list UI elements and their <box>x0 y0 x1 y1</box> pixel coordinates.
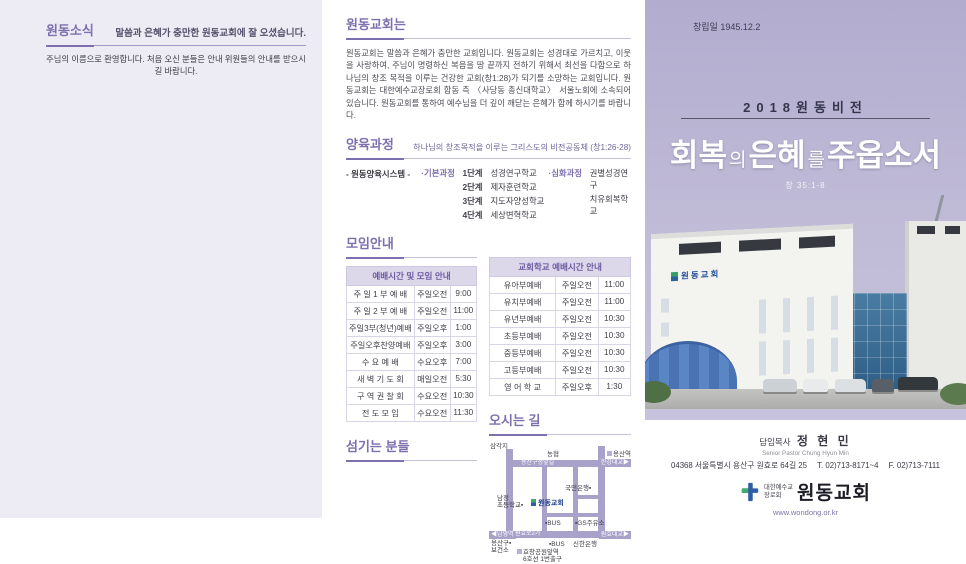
pastor-line: 담임목사 정 현 민 <box>645 432 966 449</box>
nurture-basic-label: ·기본과정 <box>421 167 462 223</box>
worship-table-header: 예배시간 및 모임 안내 <box>347 266 477 285</box>
address: 04368 서울특별시 용산구 원효로 64길 25 <box>671 461 807 470</box>
church-building-photo: 원동교회 <box>645 195 966 420</box>
table-cell: 11:30 <box>450 404 476 421</box>
section-meetings: 모임안내 예배시간 및 모임 안내 주 일 1 부 예 배주일오전9:00주 일… <box>346 233 631 559</box>
station-square-icon <box>607 451 612 456</box>
table-cell: 영 어 학 교 <box>490 378 556 395</box>
cover-footer: 담임목사 정 현 민 Senior Pastor Chung Hyun Min … <box>645 420 966 518</box>
table-cell: 주일오후찬양예배 <box>347 336 415 353</box>
verse-reference: 창 35:1-8 <box>645 180 966 191</box>
table-row: 주 일 1 부 예 배주일오전9:00 <box>347 285 477 302</box>
table-cell: 매일오전 <box>414 370 450 387</box>
table-cell: 전 도 모 임 <box>347 404 415 421</box>
step-no: 1단계 <box>462 167 490 179</box>
table-cell: 구 역 권 찰 회 <box>347 387 415 404</box>
table-row: 영 어 학 교주일오후1:30 <box>490 378 631 395</box>
nurture-title: 양육과정 <box>346 134 394 153</box>
table-cell: 중등부예배 <box>490 344 556 361</box>
photo-bottom-strip <box>645 409 966 420</box>
map-label-namyeong: ◀남영역 <box>489 531 516 539</box>
table-cell: 주일오전 <box>414 302 450 319</box>
panel-cover: 창립일 1945.12.2 2018원동비전 회복의은혜를주옵소서 창 35:1… <box>645 0 966 518</box>
parked-car <box>898 377 938 390</box>
table-cell: 유아부예배 <box>490 276 556 293</box>
table-cell: 주일오전 <box>556 293 598 310</box>
step-no: 3단계 <box>462 195 490 207</box>
table-cell: 5:30 <box>450 370 476 387</box>
section-about: 원동교회는 원동교회는 말씀과 은혜가 충만한 교회입니다. 원동교회는 성경대… <box>346 14 631 122</box>
building-sign: 원동교회 <box>671 268 720 283</box>
map-label-yongsan-station: 용산역 <box>607 451 631 459</box>
table-row: 새 벽 기 도 회매일오전5:30 <box>347 370 477 387</box>
title-word: 은혜 <box>748 138 805 173</box>
table-row: 전 도 모 임수요오전11:30 <box>347 404 477 421</box>
nurture-subtitle: 하나님의 창조목적을 이루는 그리스도의 비전공동체 (창1:26-28) <box>413 141 631 153</box>
table-cell: 10:30 <box>598 310 630 327</box>
news-headline: 말씀과 은혜가 충만한 원동교회에 잘 오셨습니다. <box>115 25 306 39</box>
table-cell: 수요오전 <box>414 404 450 421</box>
about-body: 원동교회는 말씀과 은혜가 충만한 교회입니다. 원동교회는 성경대로 가르치고… <box>346 47 631 122</box>
table-cell: 11:00 <box>598 276 630 293</box>
ground <box>645 389 966 409</box>
founding-date: 창립일 1945.12.2 <box>693 20 760 33</box>
table-cell: 주일오전 <box>556 344 598 361</box>
table-cell: 수요오전 <box>414 387 450 404</box>
cross-icon <box>740 482 760 502</box>
table-cell: 주일오전 <box>556 310 598 327</box>
main-title: 회복의은혜를주옵소서 <box>645 130 966 175</box>
table-row: 초등부예배주일오전10:30 <box>490 327 631 344</box>
map-label-shinhan-bank: 신한은행 <box>573 541 597 549</box>
table-cell: 수요오후 <box>414 353 450 370</box>
meetings-right-column: 교회학교 예배시간 안내 유아부예배주일오전11:00유치부예배주일오전11:0… <box>489 233 631 559</box>
subway-text: 효창공원앞역 6호선 1번출구 <box>523 549 562 564</box>
table-cell: 유년부예배 <box>490 310 556 327</box>
map-label-kb-bank: 국민은행▪ <box>565 485 591 493</box>
advanced-item: 치유회복학교 <box>590 193 631 217</box>
table-row: 유치부예배주일오전11:00 <box>490 293 631 310</box>
roof-windows <box>679 236 835 255</box>
step-no: 4단계 <box>462 209 490 221</box>
table-cell: 10:30 <box>598 361 630 378</box>
worship-times-table: 예배시간 및 모임 안내 주 일 1 부 예 배주일오전9:00주 일 2 부 … <box>346 266 477 422</box>
nurture-content: - 원동양육시스템 - ·기본과정 1단계성경연구학교 2단계제자훈련학교 3단… <box>346 167 631 223</box>
table-cell: 주일오전 <box>556 276 598 293</box>
news-title: 원동소식 <box>46 20 94 39</box>
about-title: 원동교회는 <box>346 14 631 39</box>
pastor-name: 정 현 민 <box>797 434 852 448</box>
parked-car <box>872 379 894 392</box>
panel-news: 원동소식 말씀과 은혜가 충만한 원동교회에 잘 오셨습니다. 주님의 이름으로… <box>0 0 322 518</box>
phone-number: T. 02)713-8171~4 <box>817 461 878 470</box>
table-row: 주 일 2 부 예 배주일오전11:00 <box>347 302 477 319</box>
table-row: 고등부예배주일오전10:30 <box>490 361 631 378</box>
news-header-row: 원동소식 말씀과 은혜가 충만한 원동교회에 잘 오셨습니다. <box>46 20 306 46</box>
map-label-school: 남정 초등학교▪ <box>497 495 523 511</box>
table-cell: 초등부예배 <box>490 327 556 344</box>
nurture-system-label: - 원동양육시스템 - <box>346 167 421 223</box>
map-label-bus-upper: ▪BUS <box>545 520 561 528</box>
table-cell: 10:30 <box>598 344 630 361</box>
table-cell: 주일오후 <box>556 378 598 395</box>
fold-line-right <box>641 0 645 518</box>
table-cell: 9:00 <box>450 285 476 302</box>
table-cell: 주일3부(청년)예배 <box>347 319 415 336</box>
nurture-header: 양육과정 하나님의 창조목적을 이루는 그리스도의 비전공동체 (창1:26-2… <box>346 134 631 159</box>
pastor-name-english: Senior Pastor Chung Hyun Min <box>645 450 966 457</box>
map-label-bridge-bottom: 원효대교▶ <box>599 531 631 539</box>
map-road-mid2 <box>542 513 598 517</box>
parked-car <box>835 379 866 392</box>
church-name: 원동교회 <box>797 478 871 505</box>
table-row: 주일오후찬양예배주일오후3:00 <box>347 336 477 353</box>
church-marker-icon <box>531 499 536 506</box>
table-cell: 유치부예배 <box>490 293 556 310</box>
vision-title: 2018원동비전 <box>645 97 966 116</box>
roof-windows <box>917 226 960 234</box>
map-label-top-road: 용산구청앞길 <box>521 460 554 467</box>
news-header: 원동소식 말씀과 은혜가 충만한 원동교회에 잘 오셨습니다. 주님의 이름으로… <box>46 20 306 77</box>
table-cell: 주일오전 <box>414 285 450 302</box>
window-row <box>759 295 839 333</box>
step-no: 2단계 <box>462 181 490 193</box>
meetings-left-column: 모임안내 예배시간 및 모임 안내 주 일 1 부 예 배주일오전9:00주 일… <box>346 233 477 559</box>
table-cell: 10:30 <box>598 327 630 344</box>
step-name: 지도자양성학교 <box>490 195 544 207</box>
nurture-advanced-items: 권별성경연구 치유회복학교 <box>590 167 631 223</box>
nurture-advanced-label: ·심화과정 <box>548 167 589 223</box>
table-row: 중등부예배주일오전10:30 <box>490 344 631 361</box>
school-table-header: 교회학교 예배시간 안내 <box>490 257 631 276</box>
map-label-gas-station: ▪GS주유소 <box>575 520 605 528</box>
title-particle: 를 <box>808 150 825 171</box>
table-cell: 1:30 <box>598 378 630 395</box>
church-logo: 대한예수교 장로회 원동교회 <box>645 478 966 505</box>
fold-line-left <box>322 0 326 518</box>
table-cell: 7:00 <box>450 353 476 370</box>
advanced-item: 권별성경연구 <box>590 167 631 191</box>
nurture-step: 4단계세상변혁학교 <box>462 209 548 221</box>
church-school-table: 교회학교 예배시간 안내 유아부예배주일오전11:00유치부예배주일오전11:0… <box>489 257 631 396</box>
table-cell: 11:00 <box>450 302 476 319</box>
table-cell: 주 일 2 부 예 배 <box>347 302 415 319</box>
map-label-bus-lower: ▪BUS <box>549 541 565 549</box>
table-row: 구 역 권 찰 회수요오전10:30 <box>347 387 477 404</box>
title-word: 주옵소서 <box>827 138 941 173</box>
map-label-subway: 효창공원앞역 6호선 1번출구 <box>517 549 562 564</box>
table-cell: 고등부예배 <box>490 361 556 378</box>
step-name: 세상변혁학교 <box>490 209 536 221</box>
map-label-church: 원동교회 <box>531 499 564 508</box>
building-right-wing <box>905 221 966 393</box>
title-word: 회복 <box>670 138 727 173</box>
map-label-bottom-road: 원효로2가 <box>515 531 540 538</box>
table-cell: 10:30 <box>450 387 476 404</box>
directions-title: 오시는 길 <box>489 410 631 435</box>
window-row <box>759 337 839 375</box>
building-sign-text: 원동교회 <box>681 268 720 282</box>
meetings-title: 모임안내 <box>346 233 477 258</box>
servants-title: 섬기는 분들 <box>346 436 477 461</box>
title-particle: 의 <box>729 150 746 171</box>
table-row: 유년부예배주일오전10:30 <box>490 310 631 327</box>
station-text: 용산역 <box>613 451 631 458</box>
table-cell: 새 벽 기 도 회 <box>347 370 415 387</box>
table-cell: 주일오후 <box>414 319 450 336</box>
nurture-step: 3단계지도자양성학교 <box>462 195 548 207</box>
map-road-mid1 <box>573 495 598 499</box>
table-cell: 주일오전 <box>556 361 598 378</box>
map-label-bridge-top: 한강대교▶ <box>599 459 631 467</box>
location-map: 삼각지 농협 용산역 용산구청앞길 한강대교▶ 국민은행▪ 남정 초등학교▪ 원… <box>489 443 631 559</box>
pastor-label: 담임목사 <box>759 437 790 447</box>
table-cell: 수 요 예 배 <box>347 353 415 370</box>
subway-square-icon <box>517 549 522 554</box>
building-sign-logo-icon <box>671 271 678 280</box>
section-nurture: 양육과정 하나님의 창조목적을 이루는 그리스도의 비전공동체 (창1:26-2… <box>346 134 631 223</box>
nurture-step: 2단계제자훈련학교 <box>462 181 548 193</box>
nurture-basic-steps: 1단계성경연구학교 2단계제자훈련학교 3단계지도자양성학교 4단계세상변혁학교 <box>462 167 548 223</box>
table-cell: 1:00 <box>450 319 476 336</box>
parked-car <box>803 379 828 392</box>
nurture-step: 1단계성경연구학교 <box>462 167 548 179</box>
fax-number: F. 02)713-7111 <box>889 461 940 470</box>
table-cell: 주일오전 <box>556 327 598 344</box>
table-cell: 3:00 <box>450 336 476 353</box>
step-name: 성경연구학교 <box>490 167 536 179</box>
church-text: 원동교회 <box>538 500 564 507</box>
table-row: 주일3부(청년)예배주일오후1:00 <box>347 319 477 336</box>
panel-info: 원동교회는 원동교회는 말씀과 은혜가 충만한 교회입니다. 원동교회는 성경대… <box>326 0 641 518</box>
parked-car <box>763 379 797 392</box>
table-row: 수 요 예 배수요오후7:00 <box>347 353 477 370</box>
table-cell: 주 일 1 부 예 배 <box>347 285 415 302</box>
table-cell: 주일오후 <box>414 336 450 353</box>
table-cell: 11:00 <box>598 293 630 310</box>
website-url: www.wondong.or.kr <box>645 508 966 517</box>
map-label-samgakji: 삼각지 <box>490 443 508 451</box>
denomination-text: 대한예수교 장로회 <box>764 484 793 499</box>
table-row: 유아부예배주일오전11:00 <box>490 276 631 293</box>
contact-line: 04368 서울특별시 용산구 원효로 64길 25 T. 02)713-817… <box>645 460 966 471</box>
welcome-text: 주님의 이름으로 환영합니다. 처음 오신 분들은 안내 위원들의 안내를 받으… <box>46 53 306 77</box>
map-label-health-center: 용산구▪ 보건소 <box>491 540 511 556</box>
vision-underline <box>681 118 930 119</box>
step-name: 제자훈련학교 <box>490 181 536 193</box>
map-label-nonghyup: 농협 <box>547 451 559 459</box>
